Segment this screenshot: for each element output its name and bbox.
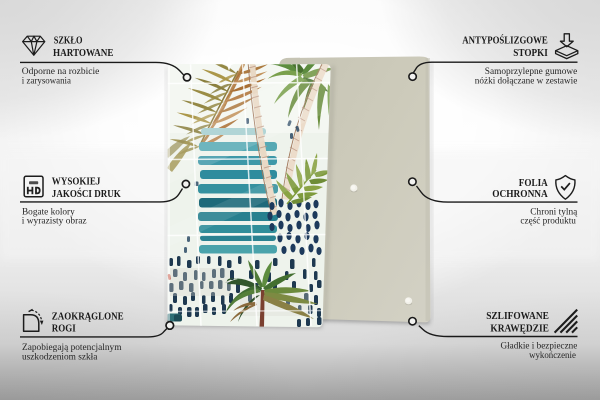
svg-text:ROGI: ROGI bbox=[52, 323, 76, 334]
svg-text:SZKŁO: SZKŁO bbox=[54, 36, 83, 47]
svg-text:i wyrazisty obraz: i wyrazisty obraz bbox=[22, 217, 87, 227]
svg-text:HARTOWANE: HARTOWANE bbox=[53, 48, 114, 59]
svg-text:JAKOŚCI DRUK: JAKOŚCI DRUK bbox=[52, 188, 122, 200]
svg-text:ANTYPOŚLIZGOWE: ANTYPOŚLIZGOWE bbox=[462, 35, 548, 47]
svg-text:część produktu: część produktu bbox=[520, 217, 576, 227]
svg-text:uszkodzeniom szkła: uszkodzeniom szkła bbox=[22, 352, 98, 362]
svg-text:SZLIFOWANE: SZLIFOWANE bbox=[486, 311, 549, 322]
svg-text:nóżki dołączane w zestawie: nóżki dołączane w zestawie bbox=[475, 76, 578, 86]
svg-text:i zarysowania: i zarysowania bbox=[22, 76, 72, 86]
svg-text:Gładkie i bezpieczne: Gładkie i bezpieczne bbox=[501, 342, 578, 352]
svg-text:WYSOKIEJ: WYSOKIEJ bbox=[52, 176, 101, 187]
svg-text:ZAOKRĄGLONE: ZAOKRĄGLONE bbox=[52, 311, 124, 322]
svg-text:FOLIA: FOLIA bbox=[519, 178, 548, 189]
svg-text:wykończenie: wykończenie bbox=[529, 351, 576, 361]
svg-text:KRAWĘDZIE: KRAWĘDZIE bbox=[490, 324, 549, 335]
svg-text:OCHRONNA: OCHRONNA bbox=[492, 189, 548, 200]
svg-text:STOPKI: STOPKI bbox=[513, 48, 548, 59]
